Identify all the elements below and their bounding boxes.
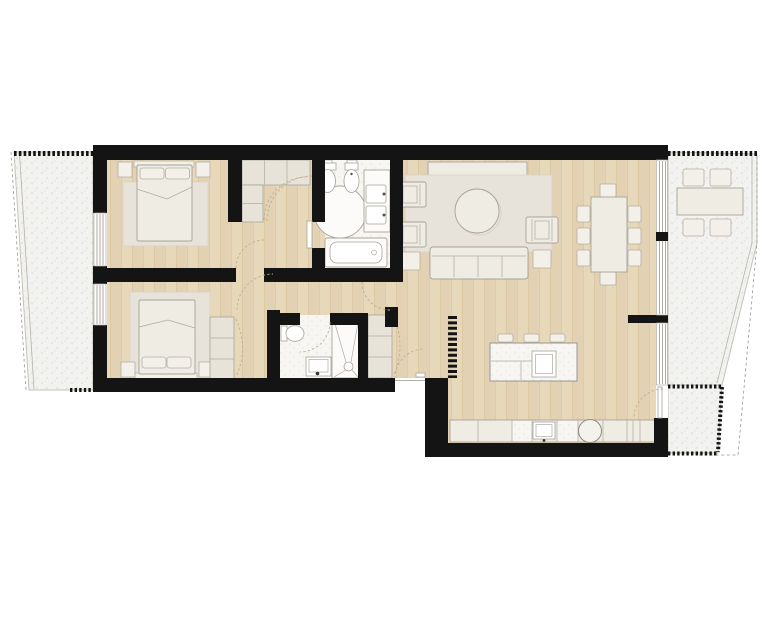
shower-drain (344, 362, 353, 371)
wall-top (93, 145, 668, 160)
entry-door-leaf (416, 373, 425, 377)
dining-chair (600, 272, 616, 285)
door-leaf (307, 221, 312, 248)
bar-stool (498, 334, 513, 342)
wall-shower-closet (358, 313, 368, 378)
dining-chair (600, 184, 616, 197)
main-bathroom (314, 160, 390, 267)
left-terrace-floor (14, 152, 93, 390)
wall-left (93, 145, 107, 213)
right-terrace-floor-lower (668, 385, 722, 453)
dining-chair (628, 206, 641, 222)
counter-worktop (513, 421, 532, 441)
round-coffee-table (455, 189, 499, 233)
sink-tap (383, 214, 386, 217)
bathtub-basin (330, 242, 382, 263)
nightstand (118, 162, 132, 177)
wall-passage-stub (385, 307, 398, 327)
sideboard (428, 162, 527, 176)
dining-table (591, 197, 627, 272)
bedroom-1-window (94, 213, 106, 266)
left-terrace (11, 152, 93, 390)
dining-chair (577, 250, 590, 266)
pillow (166, 168, 190, 179)
counter-run (450, 420, 655, 443)
bidet-tank (345, 163, 358, 170)
bar-stool (524, 334, 539, 342)
pillow (140, 168, 164, 179)
dining-chair (577, 228, 590, 244)
wall-bathroom2-top (280, 313, 300, 325)
wall-bottom (93, 378, 395, 392)
outdoor-chair (683, 169, 704, 186)
right-terrace-floor-upper (668, 152, 757, 385)
pillow (142, 357, 166, 368)
counter-worktop (558, 421, 578, 441)
bar-stool (550, 334, 565, 342)
outdoor-table (677, 188, 743, 215)
side-table (533, 250, 551, 268)
wall-bedroom-divider (93, 268, 236, 282)
round-basin (579, 420, 602, 443)
wall-step (425, 378, 448, 457)
dining-chair (628, 250, 641, 266)
dining-chair (577, 206, 590, 222)
wall-bedroom-divider (264, 268, 403, 282)
bedroom-2-window (94, 284, 106, 325)
wall-bathroom2-top (330, 313, 358, 325)
wall-kitchen-right (654, 418, 668, 457)
wall-bathroom-right (390, 160, 403, 282)
toilet (286, 326, 304, 342)
wardrobe-column (210, 317, 234, 380)
floor-plan-canvas (0, 0, 773, 617)
side-table (402, 252, 420, 270)
sink-tap (383, 193, 386, 196)
living-room-window (656, 160, 668, 315)
nightstand (196, 162, 210, 177)
armchair (526, 217, 558, 243)
right-terrace (668, 152, 757, 455)
outdoor-chair (710, 169, 731, 186)
wall-bathroom-left (312, 160, 325, 222)
basin-tap (316, 372, 320, 376)
window-mullion (656, 232, 668, 241)
wall-bedroom2-right (267, 310, 280, 378)
wall-closet-partition (228, 160, 242, 222)
pillow (167, 357, 191, 368)
wall-right-stub (628, 315, 668, 323)
nightstand (121, 362, 135, 377)
sink-tap (543, 439, 546, 442)
dining-chair (628, 228, 641, 244)
floor-plan-drawing (0, 0, 773, 617)
kitchen-window (657, 323, 668, 385)
outdoor-chair (710, 219, 731, 236)
wall-kitchen-bottom (445, 443, 668, 457)
outdoor-chair (683, 219, 704, 236)
sofa (430, 247, 528, 279)
bidet-tap (350, 173, 352, 175)
wardrobe (242, 160, 310, 185)
wall-bathroom-left (312, 248, 325, 268)
door-leaf (658, 387, 662, 418)
